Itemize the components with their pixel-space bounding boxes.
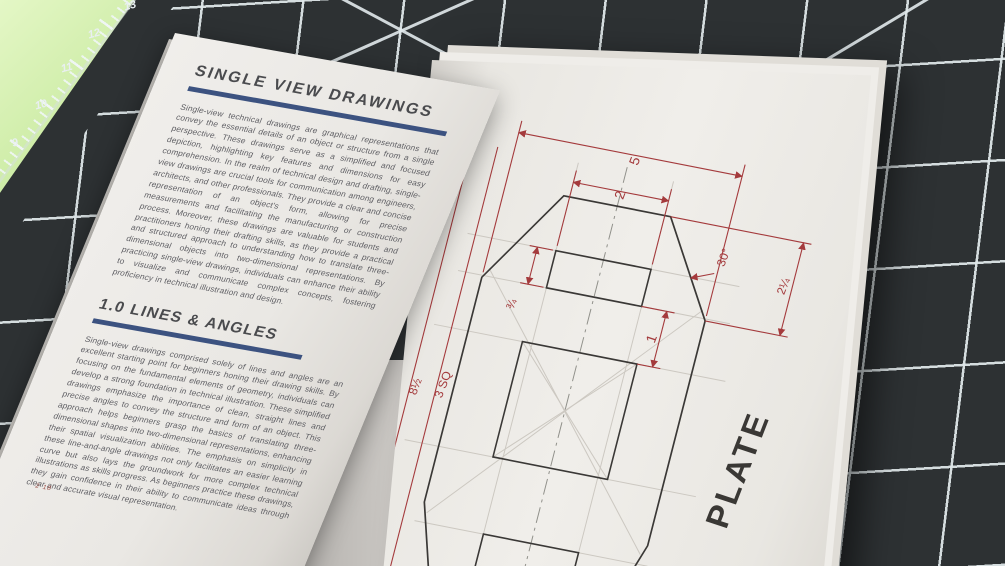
photo-scene: 13 12 11 10 9: [0, 0, 1005, 566]
dim-label-overall-length: 8½: [406, 376, 425, 396]
bottom-slot: [471, 534, 579, 566]
top-slot: [546, 251, 651, 307]
paragraph: Single-view drawings comprised solely of…: [24, 334, 345, 534]
dim-label-chamfer-angle: 30°: [714, 246, 734, 268]
dim-label-slot-width: 2: [611, 189, 629, 202]
drawing-title: PLATE: [698, 407, 777, 533]
page-number: 2 18: [34, 483, 53, 492]
paragraph: Single-view technical drawings are graph…: [110, 101, 440, 323]
centerline: [491, 167, 627, 566]
dim-label-gap: 1: [642, 332, 660, 345]
dim-label-slot-height: ¾: [503, 296, 520, 311]
